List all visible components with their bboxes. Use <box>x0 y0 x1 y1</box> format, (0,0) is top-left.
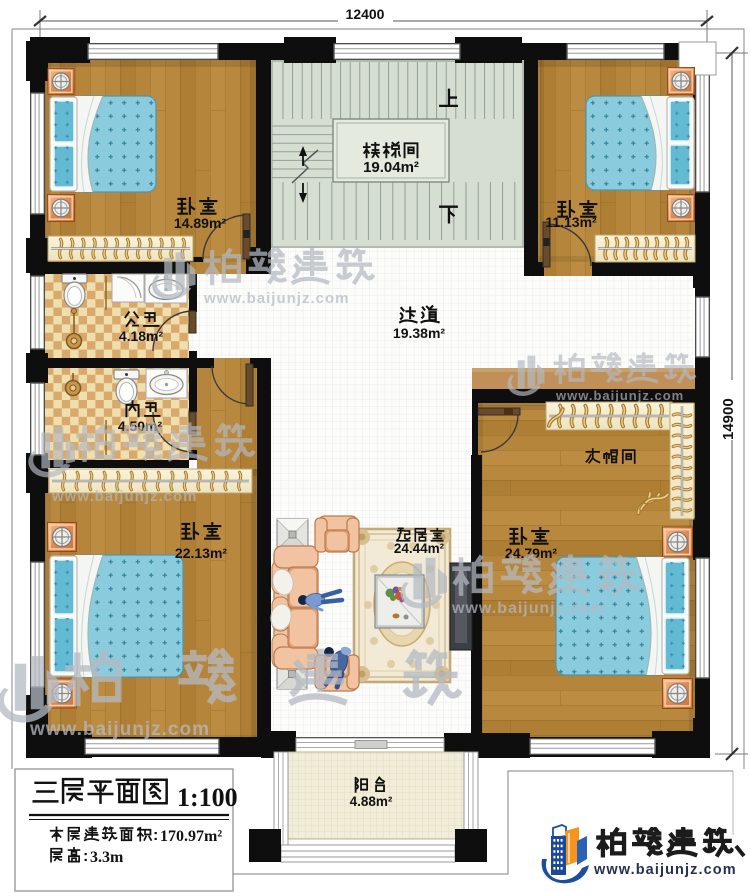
svg-text:3.3m: 3.3m <box>90 849 124 866</box>
svg-text::: : <box>153 827 158 844</box>
svg-text:19.04m²: 19.04m² <box>363 159 419 176</box>
svg-text:14.89m²: 14.89m² <box>174 215 226 231</box>
svg-text::: : <box>83 848 88 865</box>
svg-text:www.baijunjz.com: www.baijunjz.com <box>451 600 606 617</box>
svg-text:11.13m²: 11.13m² <box>545 214 597 230</box>
svg-text:19.38m²: 19.38m² <box>393 325 445 341</box>
svg-text:22.13m²: 22.13m² <box>175 545 227 561</box>
svg-text:www.baijunjz.com: www.baijunjz.com <box>29 719 210 740</box>
svg-text:www.baijunjz.com: www.baijunjz.com <box>555 388 684 403</box>
svg-text:www.baijunjz.com: www.baijunjz.com <box>51 488 197 505</box>
svg-text:4.88m²: 4.88m² <box>350 794 393 809</box>
svg-text:www.baijunjz.com: www.baijunjz.com <box>593 862 737 878</box>
svg-text:www.baijunjz.com: www.baijunjz.com <box>203 290 349 307</box>
svg-text:12400: 12400 <box>346 6 385 22</box>
svg-text:4.18m²: 4.18m² <box>119 328 164 344</box>
svg-text:24.44m²: 24.44m² <box>394 541 445 556</box>
svg-text:170.97m²: 170.97m² <box>160 828 222 845</box>
svg-text:14900: 14900 <box>720 398 737 440</box>
svg-text:1:100: 1:100 <box>177 783 238 812</box>
